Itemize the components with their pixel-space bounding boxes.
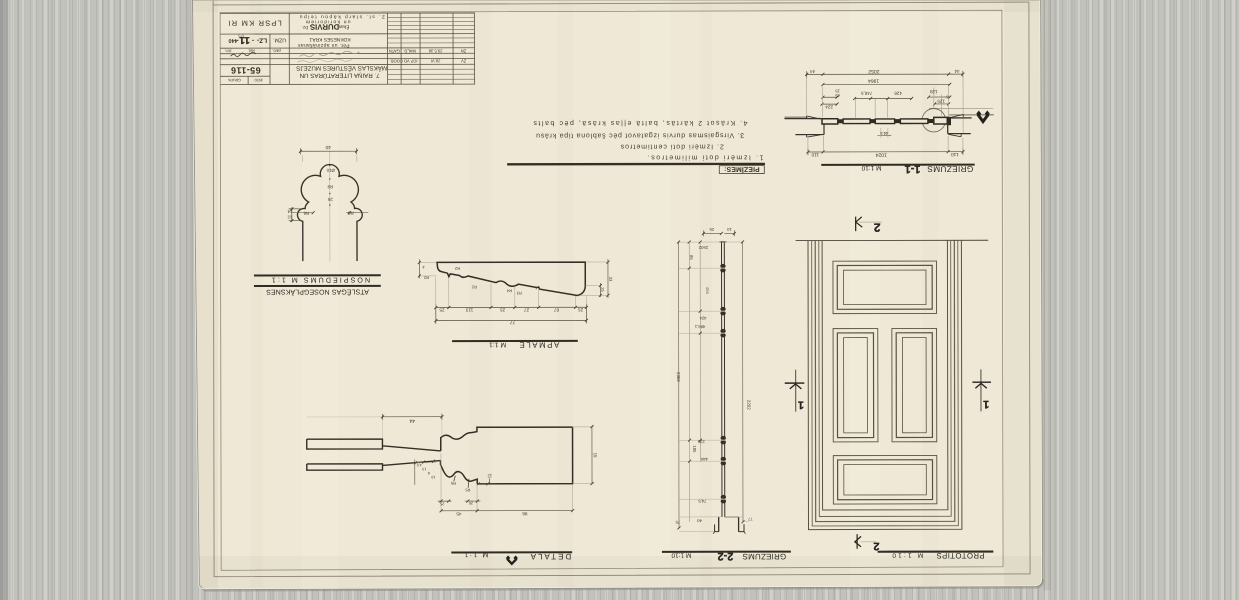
svg-text:2052: 2052 [868,68,879,74]
svg-text:DETAĻA: DETAĻA [529,552,572,561]
svg-text:M 1:10: M 1:10 [861,164,881,171]
svg-text:ZV: ZV [461,58,467,63]
svg-text:R3: R3 [516,291,522,296]
svg-text:1: 1 [983,398,989,410]
svg-text:125: 125 [937,99,945,104]
svg-text:R9: R9 [327,184,333,189]
svg-text:R2: R2 [454,266,460,271]
svg-text:LZ-: LZ- [257,37,267,44]
svg-text:13: 13 [422,467,426,471]
svg-text:vad.: vad. [248,49,255,53]
svg-text:Ø10: Ø10 [326,168,335,173]
svg-text:2. Izmēri doti centimetros: 2. Izmēri doti centimetros [620,143,724,150]
svg-text:25: 25 [440,502,444,507]
svg-text:120: 120 [929,89,937,94]
svg-text:113: 113 [465,307,473,312]
svg-text:440: 440 [700,457,708,462]
svg-text:75: 75 [675,520,680,525]
svg-text:26: 26 [327,197,332,202]
svg-text:zīm.: zīm. [225,49,232,53]
svg-text:45: 45 [835,93,840,98]
svg-text:M 1:1: M 1:1 [489,341,506,348]
svg-text:R2: R2 [423,275,429,280]
svg-text:10: 10 [726,227,731,232]
svg-text:3970: 3970 [255,78,263,82]
svg-text:224: 224 [825,104,833,109]
svg-text:GRUPA: GRUPA [228,78,241,82]
svg-text:Ēkas: Ēkas [338,23,349,30]
svg-text:74,5: 74,5 [698,499,707,504]
svg-text:LPSR KM RI: LPSR KM RI [227,19,282,28]
svg-text:746,5: 746,5 [860,91,872,96]
svg-text:96: 96 [522,511,528,516]
svg-text:4: 4 [535,286,537,290]
svg-text:65-116: 65-116 [231,65,261,75]
svg-text:110: 110 [811,151,819,157]
svg-text:25: 25 [500,307,506,312]
svg-text:26: 26 [469,501,473,506]
svg-text:7. RAIŅA LITERATŪRAS UN: 7. RAIŅA LITERATŪRAS UN [300,72,380,79]
svg-text:GATN: GATN [389,49,400,54]
svg-text:1-1: 1-1 [905,163,921,175]
svg-text:29.5.38: 29.5.38 [428,49,442,54]
svg-text:-: - [252,37,254,44]
svg-text:15: 15 [593,453,598,458]
svg-text:33: 33 [608,277,613,282]
svg-text:44: 44 [954,69,960,74]
svg-text:4. Krāsot 2 kārtās, baltā eļļa: 4. Krāsot 2 kārtās, baltā eļļas krāsā, p… [532,119,748,126]
svg-text:40: 40 [325,144,331,150]
svg-text:44,5: 44,5 [879,131,888,136]
svg-text:MALD.: MALD. [403,49,416,54]
svg-text:110: 110 [951,151,959,157]
svg-text:2302: 2302 [676,372,681,382]
svg-text:27: 27 [524,307,530,312]
svg-text:2-2: 2-2 [717,550,733,562]
svg-text:77: 77 [747,517,752,522]
svg-text:28.VI: 28.VI [431,59,441,64]
svg-text:4,5: 4,5 [417,463,422,467]
svg-text:496,1: 496,1 [694,324,705,329]
svg-text:R5: R5 [465,488,471,493]
svg-text:1+1: 1+1 [238,34,244,38]
svg-text:44: 44 [810,69,816,74]
svg-text:226: 226 [697,439,705,444]
svg-text:M 1:1: M 1:1 [463,550,489,557]
svg-text:12: 12 [487,474,492,479]
svg-text:GRIEZUMS: GRIEZUMS [927,164,973,174]
svg-text:PIEZĪMES:: PIEZĪMES: [724,165,760,173]
svg-text:15: 15 [835,89,840,94]
svg-text:12: 12 [287,215,292,220]
svg-text:67: 67 [554,307,560,312]
svg-text:10: 10 [431,475,435,479]
svg-text:2: 2 [873,540,879,552]
svg-text:40: 40 [696,518,701,523]
svg-text:185: 185 [692,445,697,453]
svg-text:M 1:10: M 1:10 [671,551,691,558]
svg-text:1964: 1964 [868,77,879,83]
svg-text:UZM.: UZM. [273,37,286,43]
svg-text:pārb.: pārb. [272,48,280,52]
svg-text:25: 25 [439,308,445,313]
svg-text:R6: R6 [303,211,309,216]
svg-text:1: 1 [798,398,804,410]
svg-text:44: 44 [409,417,415,423]
svg-text:Pēt. un apzināšanas: Pēt. un apzināšanas [297,42,349,48]
svg-text:GRIEZUMS: GRIEZUMS [742,552,786,561]
svg-text:M 1:10: M 1:10 [890,551,923,558]
svg-text:MĀKSLAS VĒSTURES MUZEJS: MĀKSLAS VĒSTURES MUZEJS [296,64,387,71]
svg-text:R4: R4 [506,288,512,293]
svg-text:8: 8 [428,471,430,475]
svg-text:45: 45 [456,511,462,516]
svg-text:2: 2 [874,221,881,235]
svg-text:25: 25 [600,287,605,292]
svg-text:456: 456 [705,287,710,295]
svg-text:PROTOTIPS: PROTOTIPS [936,551,985,560]
svg-text:APMALE: APMALE [518,340,559,349]
svg-text:3. Virsgaismas durvis izgatavo: 3. Virsgaismas durvis izgatavot pēc šabl… [535,131,744,138]
svg-text:Dz.: Dz. [302,25,309,30]
svg-text:ZN: ZN [461,48,467,53]
svg-text:1. Izmēri doti milimetros.: 1. Izmēri doti milimetros. [646,153,763,160]
svg-text:ICP VD COOB.: ICP VD COOB. [390,59,418,64]
svg-text:426: 426 [894,91,902,96]
svg-text:2502: 2502 [698,245,708,250]
svg-text:440: 440 [228,37,237,43]
svg-text:1024: 1024 [875,151,886,157]
svg-text:85: 85 [689,255,694,260]
svg-text:14: 14 [287,209,292,214]
svg-text:2202: 2202 [746,400,751,410]
svg-text:25: 25 [709,227,714,232]
svg-text:77: 77 [510,319,516,325]
svg-text:NOSPIEDUMS M 1:1: NOSPIEDUMS M 1:1 [270,276,370,285]
svg-text:R5: R5 [450,481,456,486]
svg-text:R2: R2 [471,285,477,290]
svg-text:25: 25 [578,307,584,312]
svg-text:ATSLĒGAS NOSEGPLĀKSNES: ATSLĒGAS NOSEGPLĀKSNES [266,288,369,296]
svg-text:R6: R6 [347,211,353,216]
svg-text:DURVIS: DURVIS [310,22,339,31]
svg-text:424: 424 [699,316,707,321]
